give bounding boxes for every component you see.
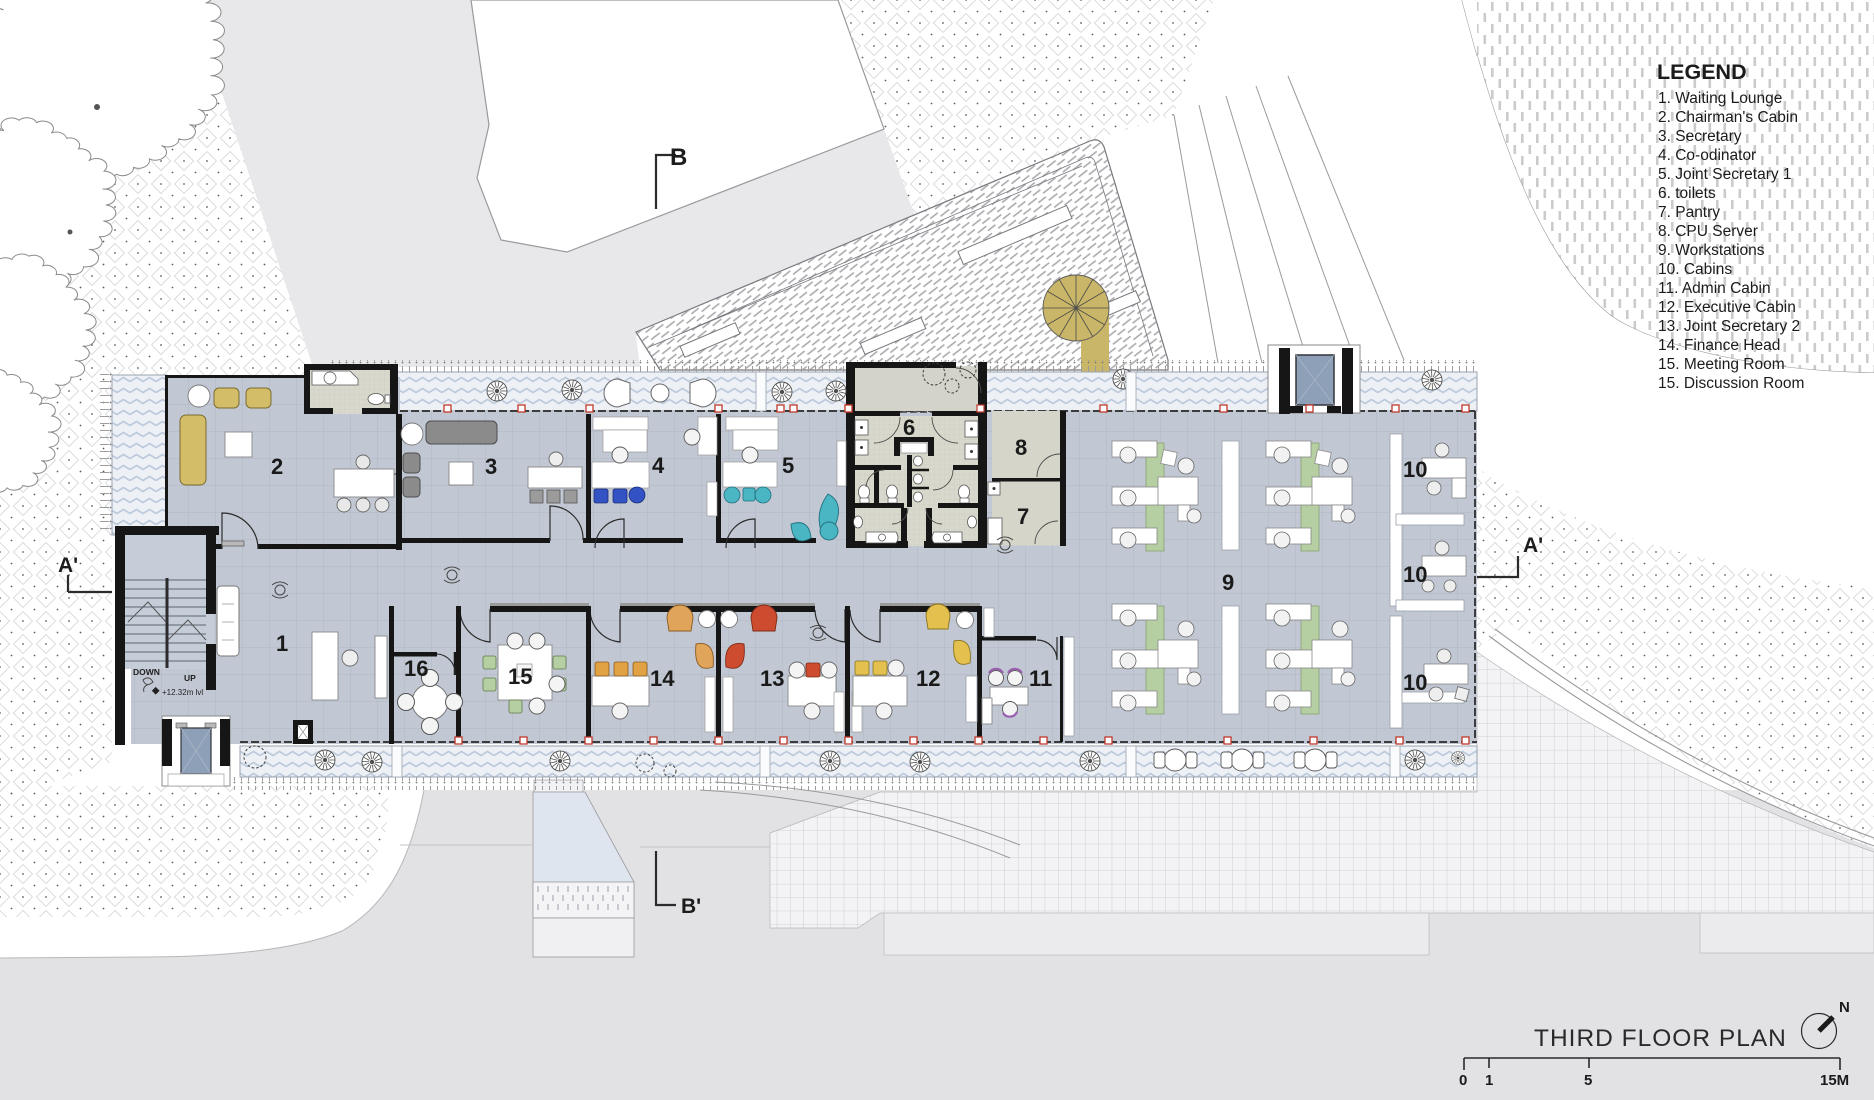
svg-text:DOWN: DOWN xyxy=(133,667,160,677)
svg-text:10: 10 xyxy=(1403,457,1427,482)
svg-text:15: 15 xyxy=(508,664,532,689)
svg-text:14: 14 xyxy=(650,666,675,691)
svg-text:10. Cabins: 10. Cabins xyxy=(1658,261,1732,278)
svg-text:1: 1 xyxy=(276,631,288,656)
svg-text:1. Waiting Lounge: 1. Waiting Lounge xyxy=(1658,90,1782,107)
svg-text:15M: 15M xyxy=(1820,1072,1849,1089)
svg-text:15. Discussion Room: 15. Discussion Room xyxy=(1658,375,1804,392)
svg-text:5. Joint Secretary 1: 5. Joint Secretary 1 xyxy=(1658,166,1792,183)
svg-text:14. Finance Head: 14. Finance Head xyxy=(1658,337,1780,354)
svg-text:9: 9 xyxy=(1222,570,1234,595)
svg-text:13: 13 xyxy=(760,666,784,691)
svg-text:9. Workstations: 9. Workstations xyxy=(1658,242,1765,259)
svg-text:7. Pantry: 7. Pantry xyxy=(1658,204,1720,221)
svg-text:7: 7 xyxy=(1017,504,1029,529)
svg-text:UP: UP xyxy=(184,673,196,683)
svg-text:3: 3 xyxy=(485,454,497,479)
svg-text:10: 10 xyxy=(1403,670,1427,695)
svg-text:+12.32m lvl: +12.32m lvl xyxy=(162,688,203,697)
svg-text:LEGEND: LEGEND xyxy=(1657,60,1747,84)
svg-text:0: 0 xyxy=(1459,1072,1467,1089)
svg-text:2: 2 xyxy=(271,454,283,479)
svg-text:15. Meeting Room: 15. Meeting Room xyxy=(1658,356,1785,373)
svg-text:4. Co-odinator: 4. Co-odinator xyxy=(1658,147,1756,164)
svg-text:THIRD FLOOR PLAN: THIRD FLOOR PLAN xyxy=(1534,1025,1787,1052)
svg-text:12. Executive Cabin: 12. Executive Cabin xyxy=(1658,299,1796,316)
svg-text:6. toilets: 6. toilets xyxy=(1658,185,1716,202)
svg-text:5: 5 xyxy=(782,453,794,478)
svg-text:10: 10 xyxy=(1403,562,1427,587)
svg-text:4: 4 xyxy=(652,453,665,478)
svg-text:A': A' xyxy=(1523,534,1543,557)
svg-text:16: 16 xyxy=(404,656,428,681)
svg-text:11: 11 xyxy=(1029,666,1052,691)
svg-text:8. CPU Server: 8. CPU Server xyxy=(1658,223,1758,240)
svg-text:12: 12 xyxy=(916,666,940,691)
svg-text:6: 6 xyxy=(903,415,915,440)
svg-text:3. Secretary: 3. Secretary xyxy=(1658,128,1742,145)
svg-text:B: B xyxy=(670,144,687,171)
svg-text:2. Chairman's Cabin: 2. Chairman's Cabin xyxy=(1658,109,1798,126)
svg-text:13. Joint Secretary 2: 13. Joint Secretary 2 xyxy=(1658,318,1800,335)
svg-text:N: N xyxy=(1839,999,1850,1016)
svg-text:8: 8 xyxy=(1015,435,1027,460)
svg-text:5: 5 xyxy=(1584,1072,1592,1089)
svg-text:11. Admin Cabin: 11. Admin Cabin xyxy=(1658,280,1771,297)
svg-text:1: 1 xyxy=(1485,1072,1493,1089)
svg-text:A': A' xyxy=(58,554,78,577)
svg-text:B': B' xyxy=(681,895,701,918)
